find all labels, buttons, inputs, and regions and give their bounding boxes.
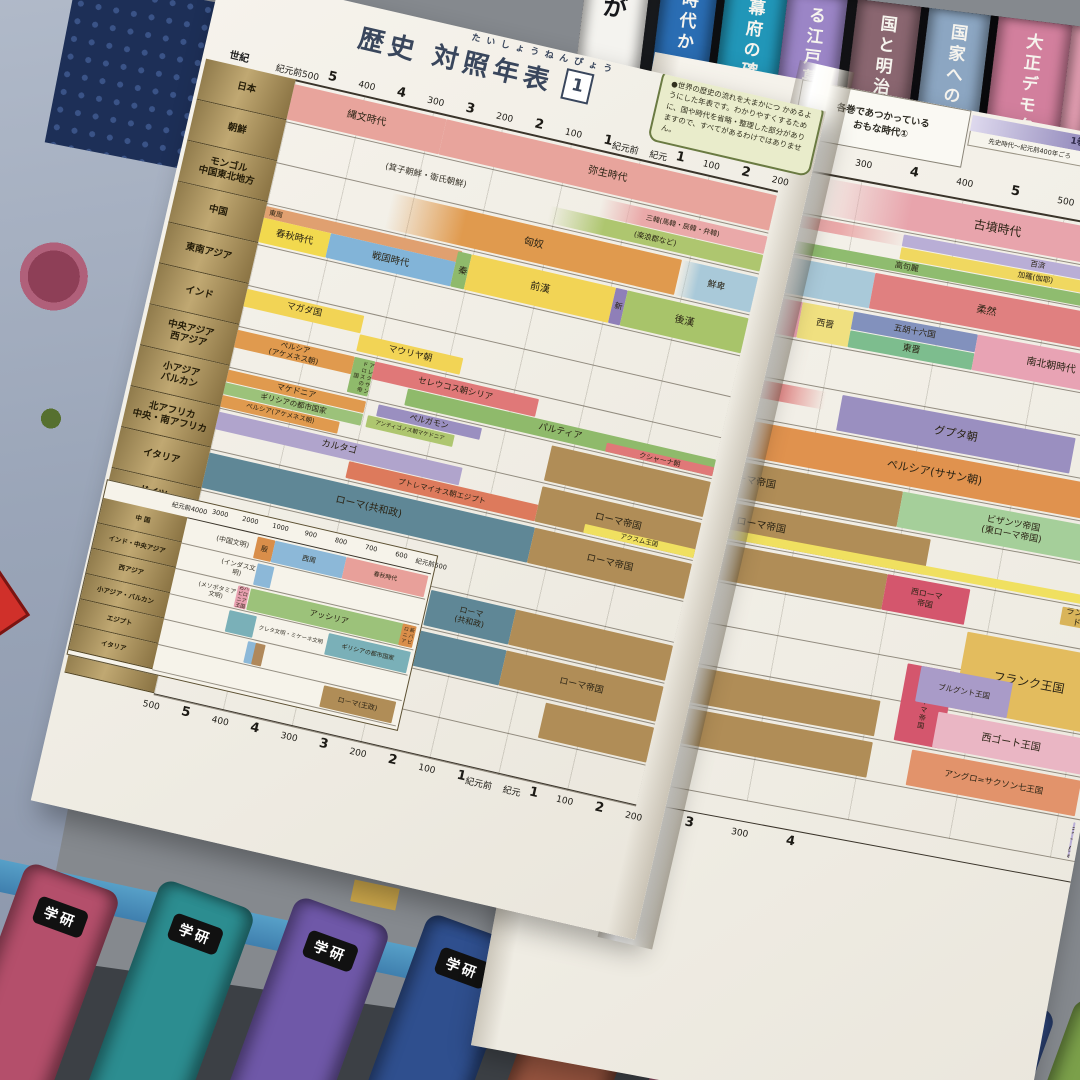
axis-tick: 紀元: [502, 782, 522, 799]
axis-tick: 1: [528, 784, 540, 801]
era-label: 柔然: [975, 304, 997, 319]
axis-tick: 100: [555, 794, 574, 808]
era-label: (中国文明): [215, 534, 249, 550]
publisher-logo: 学研: [31, 895, 89, 939]
era-label: ローマ(王政): [337, 696, 378, 713]
axis-tick: 5: [326, 69, 338, 86]
axis-tick: 400: [955, 177, 974, 190]
publisher-logo: 学研: [301, 929, 359, 973]
era-label: グプタ朝: [933, 424, 979, 445]
era-label: 西晋: [815, 318, 835, 332]
era-label: 新: [612, 301, 623, 312]
axis-tick: 900: [304, 529, 318, 540]
axis-tick: 200: [624, 810, 643, 824]
axis-tick: 2000: [241, 515, 259, 527]
axis-tick: 1000: [272, 522, 290, 534]
era-label: 百済: [1030, 259, 1046, 271]
era-label: アッシリア: [308, 608, 349, 626]
axis-tick: 3: [464, 101, 476, 118]
era-label: (箕子朝鮮・衛氏朝鮮): [384, 162, 467, 191]
axis-tick: 300: [279, 731, 298, 745]
era-label: ローマ帝国: [558, 676, 604, 697]
axis-tick: 100: [564, 127, 583, 141]
era-label: 東晋: [901, 343, 921, 357]
era-label: 春秋時代: [373, 571, 398, 583]
axis-tick: 2: [386, 752, 398, 769]
axis-tick: 700: [364, 543, 378, 554]
era-label: 前漢: [529, 281, 551, 297]
era-label: 春秋時代: [275, 228, 315, 248]
era-label: 殷: [260, 544, 269, 554]
axis-tick: 5: [180, 704, 192, 721]
era-label: 西ゴート王国: [980, 732, 1041, 755]
era-label: ブルグント王国: [937, 683, 990, 701]
era-label: 五胡十六国: [893, 323, 937, 341]
era-label: 古墳時代: [973, 217, 1023, 240]
axis-tick: 200: [495, 111, 514, 125]
era-label: 鮮卑: [706, 279, 726, 294]
axis-tick: 4: [909, 165, 921, 181]
open-book-photo: が時代か幕府の確る江戸幕府国と明治維新国家への歩み大正デモクラシーと戦争へ 一 …: [0, 0, 1080, 1080]
publisher-logo: 学研: [166, 912, 224, 956]
axis-tick: 3: [318, 736, 330, 753]
axis-tick: 2: [740, 164, 752, 181]
era-label: 南北朝時代: [1025, 356, 1076, 377]
era-label: ローマ (共和政): [453, 605, 487, 631]
era-label: ギリシアの都市国家: [341, 644, 395, 663]
era-label: ローマ帝国: [585, 552, 634, 574]
axis-tick: 5: [1010, 183, 1022, 199]
axis-tick: 600: [394, 550, 408, 561]
axis-tick: 3: [684, 814, 696, 830]
axis-tick: 800: [334, 536, 348, 547]
axis-tick: 100: [417, 763, 436, 777]
era-label: 匈奴: [522, 236, 544, 252]
era-label: ビザンツ帝国 (東ローマ帝国): [980, 514, 1044, 546]
axis-tick: 4: [395, 85, 407, 102]
era-label: ローマ(共和政): [334, 494, 403, 521]
axis-tick: 200: [771, 175, 790, 189]
axis-tick: 3000: [211, 508, 229, 520]
axis-tick: 400: [210, 715, 229, 729]
axis-tick: 100: [702, 159, 721, 173]
axis-tick: 500: [142, 699, 161, 713]
axis-tick: 500: [1056, 196, 1075, 209]
axis-tick: 2: [533, 116, 545, 133]
axis-tick: 紀元前: [464, 774, 493, 793]
volume-badge: 1: [560, 68, 594, 105]
axis-tick: 4: [785, 833, 797, 849]
era-label: カルタゴ: [320, 439, 358, 458]
axis-tick: 4: [249, 720, 261, 737]
era-label: 縄文時代: [346, 109, 388, 130]
axis-tick: 300: [426, 96, 445, 110]
axis-tick: 300: [730, 827, 749, 840]
axis-tick: 2: [593, 799, 605, 816]
era-label: 戦国時代: [371, 250, 411, 270]
axis-tick: 1: [674, 149, 686, 166]
axis-tick: 400: [357, 80, 376, 94]
axis-tick: 200: [348, 747, 367, 761]
axis-tick: 300: [854, 158, 873, 171]
era-label: 後漢: [673, 314, 695, 330]
era-label: アングロ=サクソン七王国: [943, 769, 1043, 797]
era-label: ペルシア(ササン朝): [886, 458, 983, 489]
era-label: (メソポタミア文明): [195, 580, 237, 603]
era-label: 秦: [455, 264, 468, 276]
era-label: 西ローマ 帝国: [908, 587, 943, 612]
era-label: マガダ国: [285, 302, 323, 321]
era-label: 西周: [301, 554, 317, 565]
era-label: 東周: [268, 208, 284, 219]
era-label: 弥生時代: [587, 165, 629, 186]
